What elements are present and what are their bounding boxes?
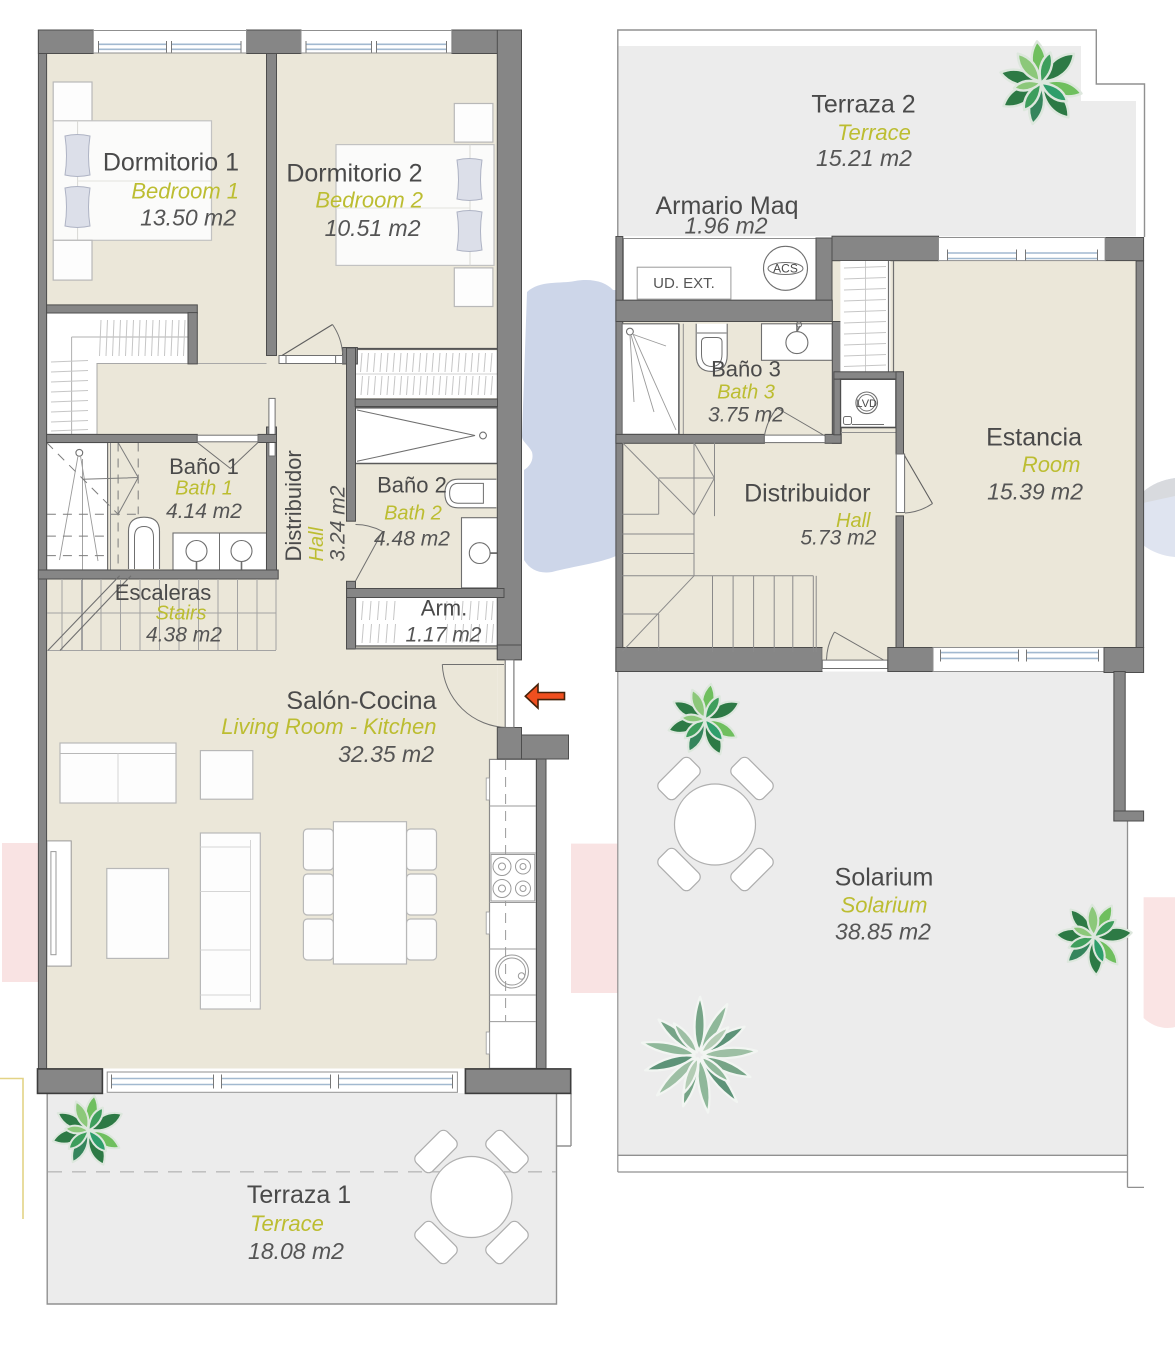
- svg-text:3.24 m2: 3.24 m2: [327, 485, 350, 561]
- svg-text:38.85 m2: 38.85 m2: [835, 919, 931, 945]
- svg-text:UD. EXT.: UD. EXT.: [653, 275, 715, 292]
- svg-text:Living Room - Kitchen: Living Room - Kitchen: [221, 714, 436, 739]
- svg-text:15.39 m2: 15.39 m2: [987, 479, 1083, 505]
- svg-text:Terrace: Terrace: [837, 120, 911, 145]
- svg-text:Salón-Cocina: Salón-Cocina: [286, 687, 436, 715]
- svg-text:Dormitorio 2: Dormitorio 2: [286, 160, 422, 188]
- svg-text:3.75 m2: 3.75 m2: [708, 404, 784, 427]
- svg-text:4.48 m2: 4.48 m2: [374, 528, 450, 551]
- svg-text:1.96 m2: 1.96 m2: [684, 213, 767, 239]
- svg-text:32.35 m2: 32.35 m2: [338, 741, 434, 767]
- svg-text:Bedroom 1: Bedroom 1: [131, 179, 239, 204]
- svg-text:Solarium: Solarium: [835, 864, 934, 892]
- svg-text:Bath 2: Bath 2: [384, 503, 442, 525]
- svg-text:LVD: LVD: [856, 398, 877, 410]
- svg-text:5.73 m2: 5.73 m2: [800, 527, 876, 550]
- svg-text:Terraza 1: Terraza 1: [247, 1181, 351, 1209]
- svg-text:15.21 m2: 15.21 m2: [816, 145, 912, 171]
- svg-text:Hall: Hall: [306, 526, 328, 561]
- svg-text:Bath 3: Bath 3: [717, 382, 775, 404]
- svg-text:Arm.: Arm.: [421, 596, 467, 621]
- svg-text:4.14 m2: 4.14 m2: [166, 500, 242, 523]
- svg-text:Terrace: Terrace: [250, 1211, 324, 1236]
- svg-text:Dormitorio 1: Dormitorio 1: [103, 149, 239, 177]
- svg-text:Escaleras: Escaleras: [115, 580, 212, 605]
- svg-text:4.38 m2: 4.38 m2: [146, 624, 222, 647]
- svg-text:Bath 1: Bath 1: [175, 478, 233, 500]
- svg-text:Baño 3: Baño 3: [711, 357, 781, 382]
- svg-text:1.17 m2: 1.17 m2: [406, 624, 482, 647]
- svg-text:18.08 m2: 18.08 m2: [248, 1238, 344, 1264]
- svg-text:Solarium: Solarium: [841, 893, 928, 918]
- svg-text:Baño 1: Baño 1: [169, 454, 239, 479]
- svg-text:13.50 m2: 13.50 m2: [140, 205, 236, 231]
- svg-text:Room: Room: [1022, 452, 1081, 477]
- svg-text:Distribuidor: Distribuidor: [744, 480, 870, 508]
- svg-text:Distribuidor: Distribuidor: [281, 450, 306, 561]
- svg-text:ACS: ACS: [773, 262, 798, 276]
- svg-text:Baño 2: Baño 2: [377, 473, 447, 498]
- svg-text:Estancia: Estancia: [986, 424, 1082, 452]
- svg-text:10.51 m2: 10.51 m2: [325, 215, 421, 241]
- svg-text:Terraza 2: Terraza 2: [811, 91, 915, 119]
- svg-text:Bedroom 2: Bedroom 2: [315, 188, 423, 213]
- svg-text:Stairs: Stairs: [155, 603, 206, 625]
